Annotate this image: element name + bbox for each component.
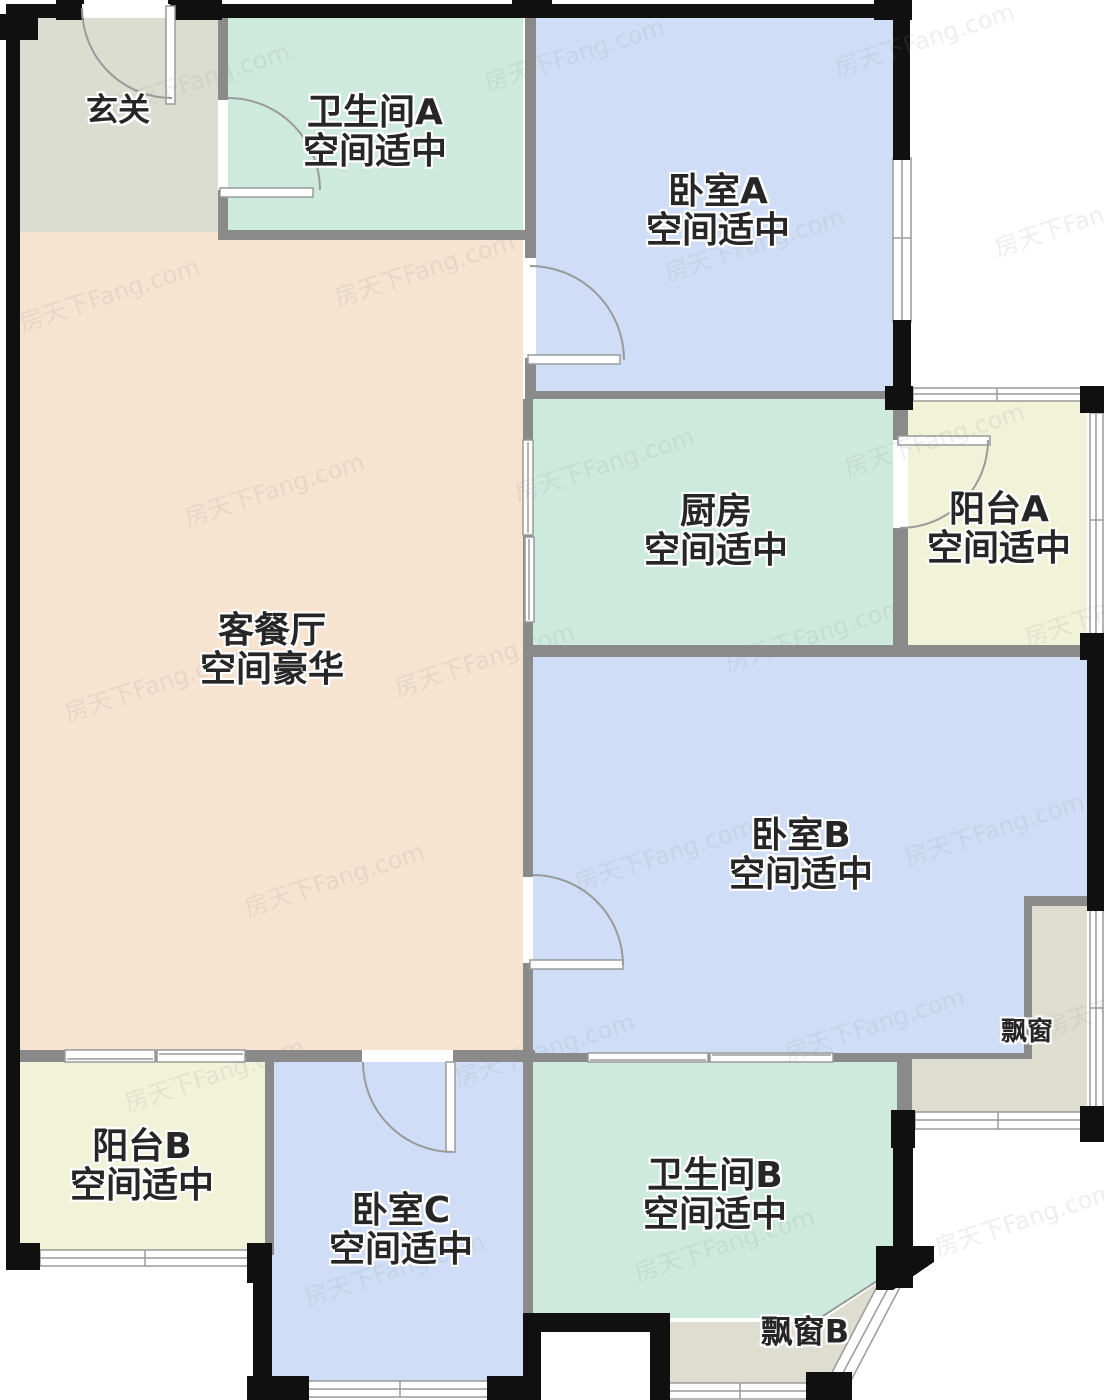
- room-size: 空间适中: [70, 1167, 214, 1206]
- room-label-foyer: 玄关: [86, 93, 150, 128]
- room-size: 空间适中: [303, 133, 447, 172]
- room-name: 卫生间B: [643, 1157, 787, 1196]
- room-label-bay-window: 飘窗: [1001, 1018, 1053, 1046]
- room-name: 飘窗: [1001, 1018, 1053, 1046]
- room-name: 玄关: [86, 93, 150, 128]
- floor-plan: 房天下Fang.com房天下Fang.com房天下Fang.com房天下Fang…: [0, 0, 1104, 1400]
- room-label-bedroom-b: 卧室B 空间适中: [729, 817, 873, 895]
- room-name: 客餐厅: [200, 612, 344, 651]
- room-label-bathroom-b: 卫生间B 空间适中: [643, 1157, 787, 1235]
- room-label-balcony-a: 阳台A 空间适中: [927, 491, 1071, 569]
- room-name: 阳台A: [927, 491, 1071, 530]
- room-size: 空间适中: [729, 856, 873, 895]
- room-label-living-dining: 客餐厅 空间豪华: [200, 612, 344, 690]
- room-size: 空间适中: [644, 532, 788, 571]
- room-label-balcony-b: 阳台B 空间适中: [70, 1128, 214, 1206]
- room-name: 卧室C: [329, 1192, 473, 1231]
- room-name: 阳台B: [70, 1128, 214, 1167]
- room-label-bay-window-b: 飘窗B: [761, 1315, 849, 1350]
- room-label-bedroom-c: 卧室C 空间适中: [329, 1192, 473, 1270]
- room-name: 卧室A: [646, 173, 790, 212]
- room-name: 卫生间A: [303, 94, 447, 133]
- room-size: 空间适中: [646, 212, 790, 251]
- room-size: 空间适中: [329, 1231, 473, 1270]
- room-label-bathroom-a: 卫生间A 空间适中: [303, 94, 447, 172]
- room-labels: 玄关 卫生间A 空间适中 卧室A 空间适中 厨房 空间适中 阳台A 空间适中 客…: [0, 0, 1104, 1400]
- room-size: 空间适中: [643, 1196, 787, 1235]
- room-name: 卧室B: [729, 817, 873, 856]
- room-size: 空间豪华: [200, 651, 344, 690]
- room-name: 厨房: [644, 493, 788, 532]
- room-label-kitchen: 厨房 空间适中: [644, 493, 788, 571]
- room-size: 空间适中: [927, 530, 1071, 569]
- room-name: 飘窗B: [761, 1315, 849, 1350]
- room-label-bedroom-a: 卧室A 空间适中: [646, 173, 790, 251]
